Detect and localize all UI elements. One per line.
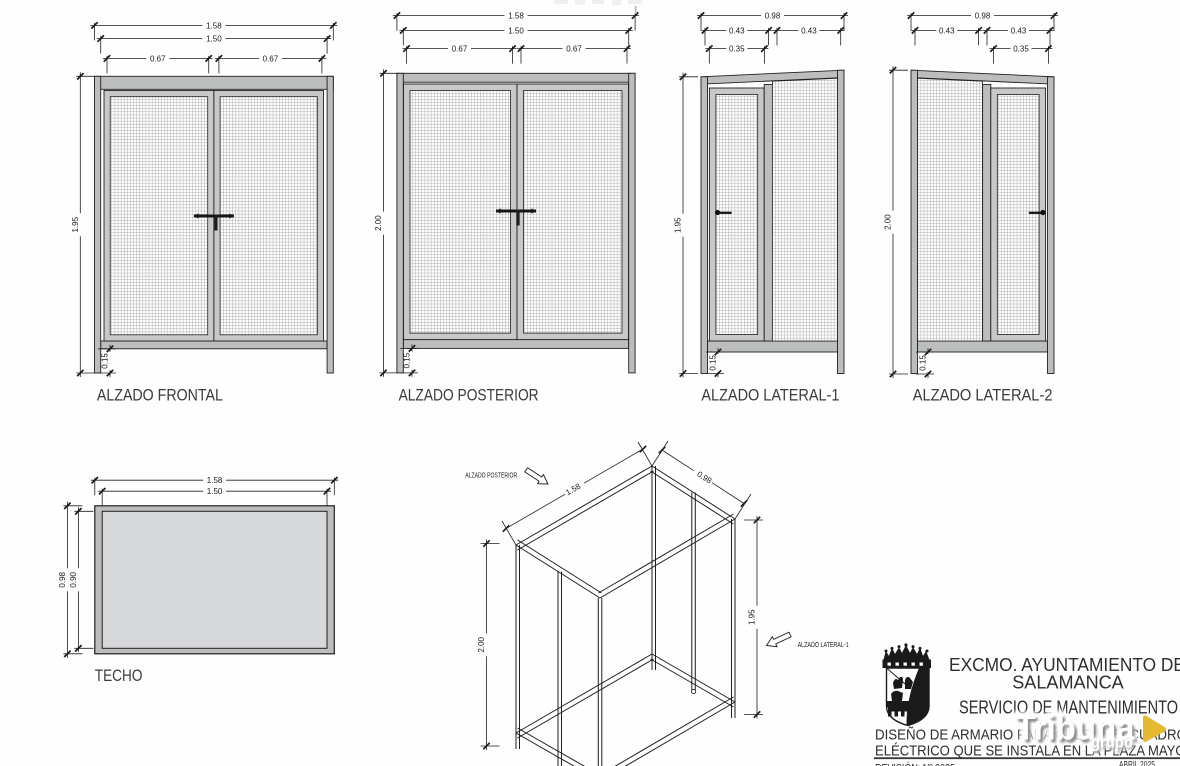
svg-text:2.00: 2.00 (884, 214, 893, 230)
svg-text:0.67: 0.67 (150, 54, 166, 63)
svg-text:1.58: 1.58 (508, 12, 524, 21)
svg-text:1.50: 1.50 (207, 487, 223, 496)
svg-text:0.15: 0.15 (101, 353, 110, 369)
svg-text:0.35: 0.35 (729, 45, 745, 54)
svg-text:ALZADO FRONTAL: ALZADO FRONTAL (97, 386, 223, 405)
svg-text:0.15: 0.15 (919, 355, 928, 371)
svg-text:0.98: 0.98 (765, 12, 781, 21)
svg-text:0.35: 0.35 (1013, 45, 1029, 54)
svg-text:ALZADO LATERAL-2: ALZADO LATERAL-2 (913, 386, 1053, 405)
svg-text:1.95: 1.95 (674, 217, 683, 233)
svg-text:1.50: 1.50 (508, 26, 524, 35)
svg-text:0.90: 0.90 (69, 571, 78, 587)
svg-text:ABRIL 2025: ABRIL 2025 (1119, 760, 1155, 766)
svg-text:1.50: 1.50 (206, 35, 222, 44)
svg-text:1.58: 1.58 (206, 21, 222, 30)
svg-text:0.67: 0.67 (452, 45, 468, 54)
svg-text:0.98: 0.98 (58, 571, 67, 587)
svg-text:TECHO: TECHO (95, 666, 143, 685)
svg-text:0.43: 0.43 (939, 26, 955, 35)
svg-text:0.98: 0.98 (975, 12, 991, 21)
svg-text:0.15: 0.15 (709, 354, 718, 370)
svg-text:ALZADO LATERAL-1: ALZADO LATERAL-1 (701, 386, 839, 405)
svg-text:grupo: grupo (1091, 735, 1133, 752)
svg-text:2.00: 2.00 (477, 636, 486, 652)
svg-text:REVISIÓN: Nº 2025: REVISIÓN: Nº 2025 (875, 762, 955, 766)
svg-text:1.95: 1.95 (748, 609, 757, 625)
svg-text:ALZADO POSTERIOR: ALZADO POSTERIOR (465, 471, 517, 480)
svg-text:SALAMANCA: SALAMANCA (1012, 672, 1124, 693)
svg-text:2.00: 2.00 (374, 215, 383, 231)
svg-text:ALZADO LATERAL-1: ALZADO LATERAL-1 (798, 640, 849, 649)
svg-text:0.43: 0.43 (801, 26, 817, 35)
svg-text:0.15: 0.15 (403, 352, 412, 368)
svg-text:0.43: 0.43 (1011, 26, 1027, 35)
svg-text:0.43: 0.43 (729, 26, 745, 35)
svg-text:1.58: 1.58 (207, 476, 223, 485)
svg-text:0.67: 0.67 (566, 45, 582, 54)
svg-text:0.67: 0.67 (263, 54, 279, 63)
svg-text:ALZADO POSTERIOR: ALZADO POSTERIOR (399, 386, 539, 405)
svg-text:1.95: 1.95 (71, 216, 80, 232)
